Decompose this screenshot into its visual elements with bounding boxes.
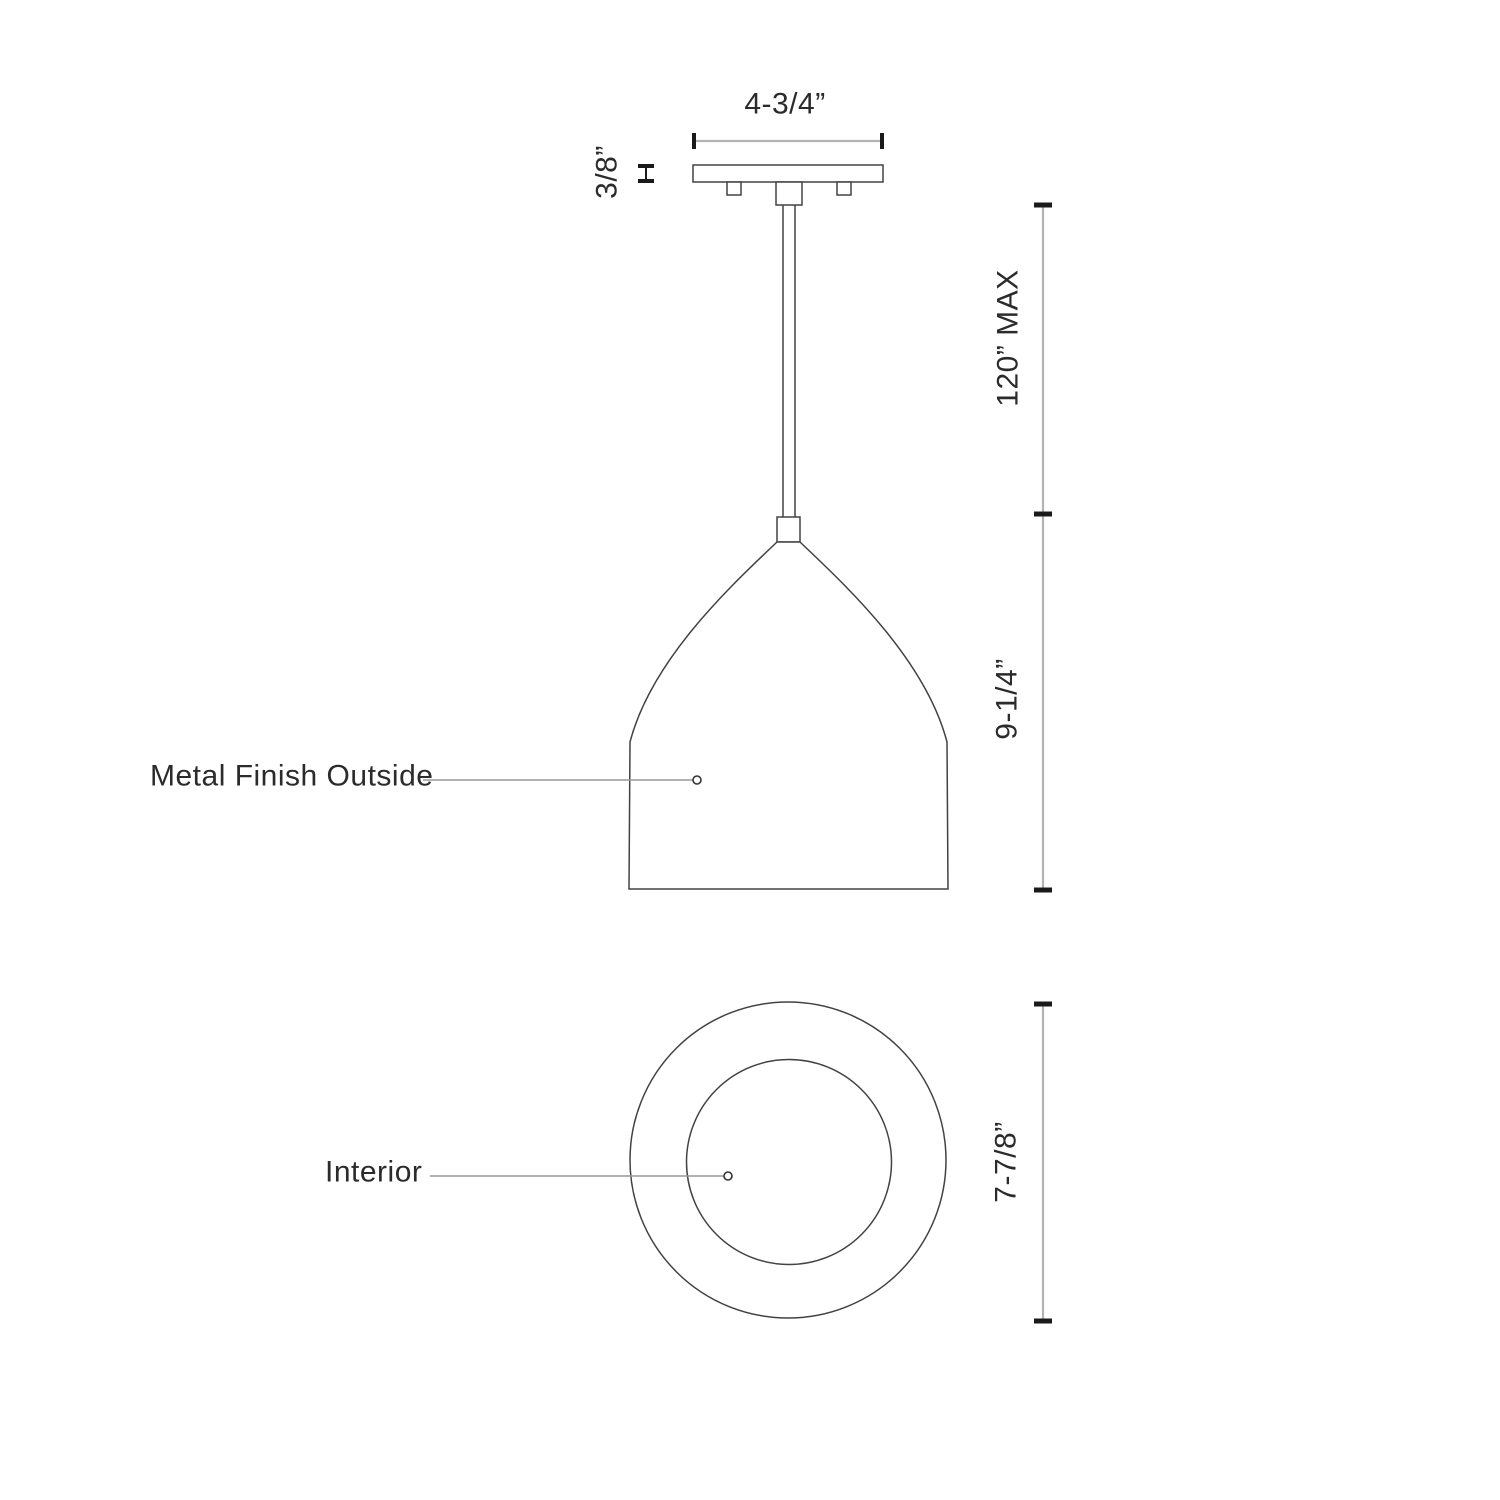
finish-callout-label: Metal Finish Outside xyxy=(150,760,433,793)
height-dimension-column: 120” MAX 9-1/4” xyxy=(991,205,1053,890)
canopy-width-dimension: 4-3/4” xyxy=(694,88,882,150)
bottom-view: Interior 7-7/8” xyxy=(325,1002,1052,1321)
canopy-plate xyxy=(693,165,883,182)
finish-leader-dot xyxy=(693,776,701,784)
diameter-dimension: 7-7/8” xyxy=(990,1004,1053,1321)
drawing-canvas: 4-3/4” 3/8” xyxy=(0,0,1500,1500)
interior-leader-dot xyxy=(724,1172,732,1180)
canopy-thickness-label: 3/8” xyxy=(591,145,624,199)
interior-callout-label: Interior xyxy=(325,1156,422,1189)
suspension-max-label: 120” MAX xyxy=(992,269,1025,406)
suspension-rod xyxy=(783,205,795,517)
shade-inner-circle xyxy=(687,1060,892,1265)
finish-callout: Metal Finish Outside xyxy=(150,760,701,793)
canopy-hub xyxy=(776,182,802,205)
pendant-dimension-drawing: 4-3/4” 3/8” xyxy=(0,0,1500,1500)
canopy-screw-right xyxy=(837,182,851,195)
canopy-thickness-dimension: 3/8” xyxy=(591,145,655,199)
canopy-screw-left xyxy=(727,182,741,195)
front-view: 4-3/4” 3/8” xyxy=(150,88,1052,891)
canopy-assembly xyxy=(693,165,883,205)
shade-connector xyxy=(777,517,800,542)
pendant-shade xyxy=(629,542,948,889)
shade-height-label: 9-1/4” xyxy=(991,658,1024,739)
shade-diameter-label: 7-7/8” xyxy=(990,1121,1023,1202)
canopy-width-label: 4-3/4” xyxy=(744,88,825,121)
